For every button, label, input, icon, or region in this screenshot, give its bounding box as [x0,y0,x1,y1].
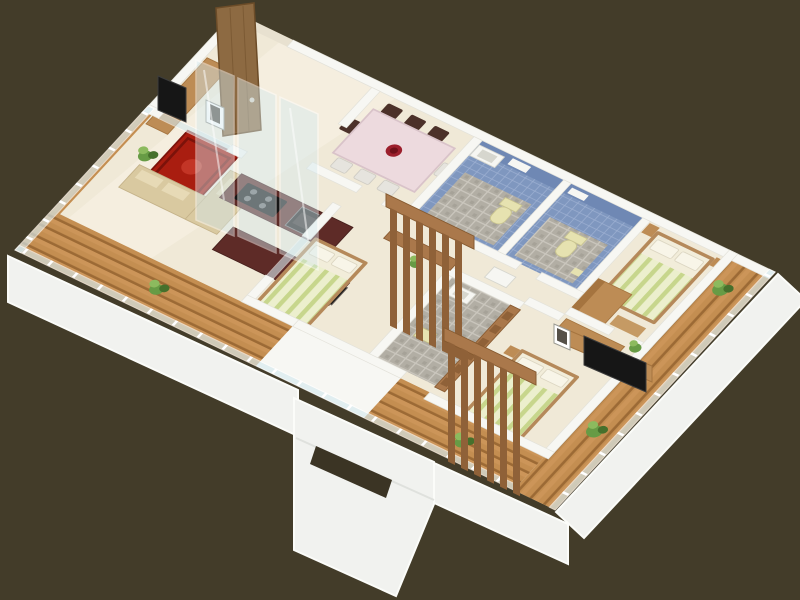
floor-plan-render [0,0,800,600]
slat-bar [513,373,520,496]
slat-bar [403,214,410,335]
slat-bar [487,360,494,483]
slat-bar [474,354,481,477]
glass-pane [280,97,318,270]
slat-bar [500,367,507,490]
glass-pane [238,78,276,253]
slat-bar [416,220,423,341]
slat-bar [448,342,455,465]
floor-plan-canvas [0,0,800,600]
slat-bar [461,348,468,471]
slat-bar [429,226,436,347]
slat-bar [390,208,397,329]
